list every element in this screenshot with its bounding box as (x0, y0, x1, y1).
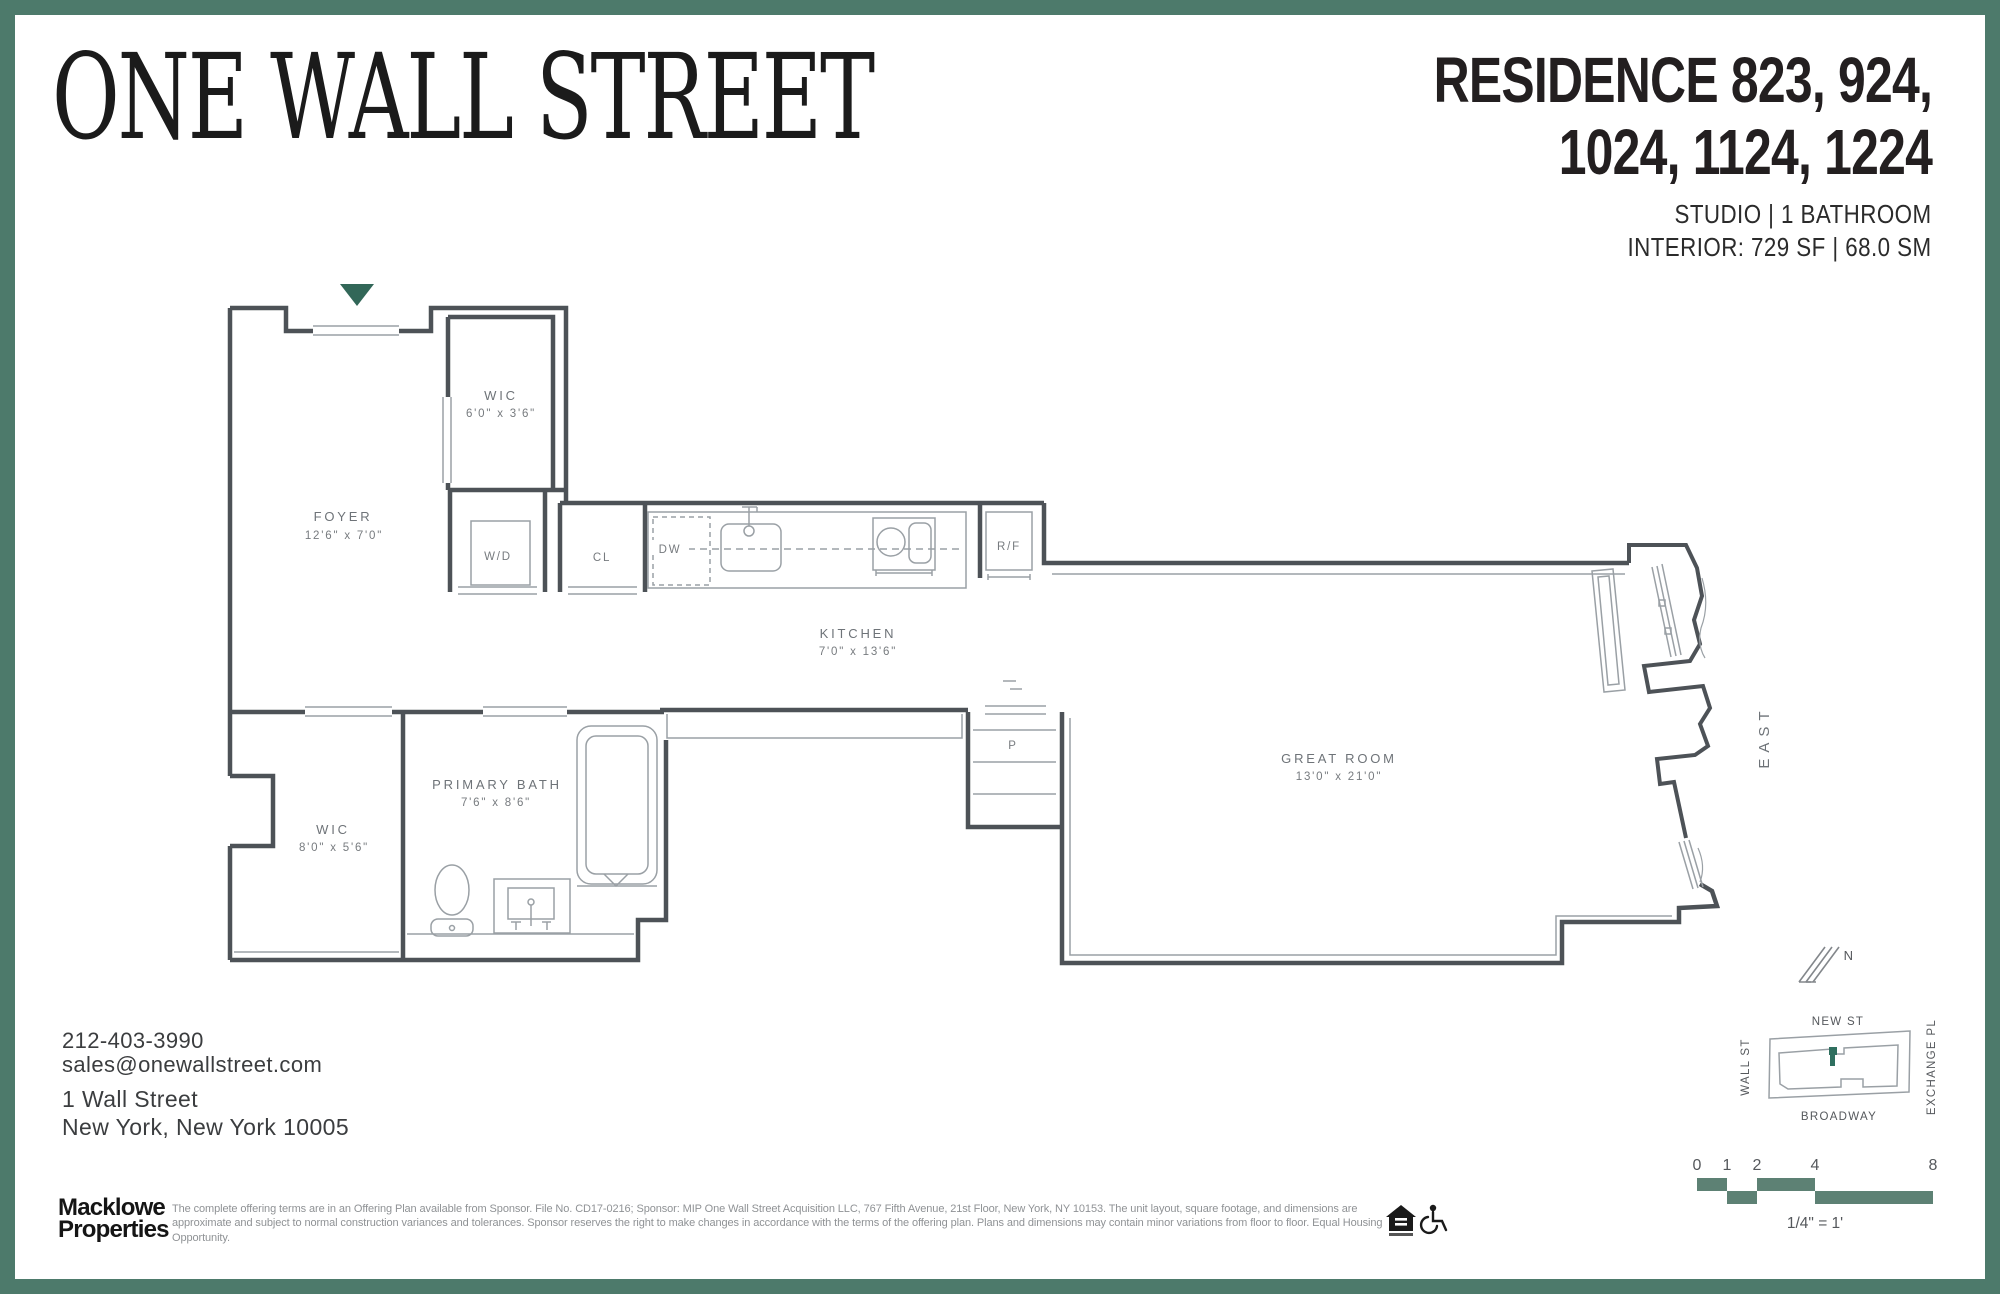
map-street-exchange-pl: EXCHANGE PL (1926, 1019, 1938, 1115)
building-location-marker (1829, 1047, 1837, 1066)
room-labels: WIC 6'0" x 3'6" FOYER 12'6" x 7'0" W/D C… (299, 388, 1773, 854)
contact-phone: 212-403-3990 (62, 1028, 204, 1054)
legal-disclaimer-line2: and subject to normal construction varia… (172, 1217, 1382, 1243)
scale-tick-1: 1 (1723, 1157, 1732, 1174)
room-label-dw: DW (659, 544, 682, 556)
entry-marker-icon (340, 284, 374, 306)
room-label-rf: R/F (997, 541, 1021, 553)
room-label-kitchen: KITCHEN (820, 626, 897, 641)
room-label-wd: W/D (484, 551, 512, 563)
north-label: N (1844, 948, 1855, 963)
floorplan-sheet: ONE WALL STREET RESIDENCE 823, 924, 1024… (0, 0, 2000, 1294)
orientation-label-east: EAST (1756, 705, 1773, 768)
room-dims-kitchen: 7'0" x 13'6" (819, 646, 897, 658)
room-label-primary-bath: PRIMARY BATH (432, 777, 562, 792)
map-street-wall-st: WALL ST (1740, 1038, 1752, 1095)
map-street-broadway: BROADWAY (1801, 1111, 1877, 1123)
room-label-pantry: P (1008, 740, 1017, 752)
scale-bar: 0 1 2 4 8 1/4" = 1' (1693, 1157, 1938, 1232)
room-label-wic-upper: WIC (484, 388, 518, 403)
contact-address-line1: 1 Wall Street (62, 1086, 198, 1113)
north-arrow-icon (1799, 947, 1839, 982)
contact-address-line2: New York, New York 10005 (62, 1114, 349, 1141)
equal-housing-icon (1386, 1205, 1416, 1236)
room-dims-foyer: 12'6" x 7'0" (305, 530, 383, 542)
brokerage-logo-line2: Properties (58, 1219, 169, 1241)
room-dims-great-room: 13'0" x 21'0" (1296, 771, 1382, 783)
room-label-cl: CL (593, 552, 611, 564)
room-label-wic-lower: WIC (316, 822, 350, 837)
accessibility-icon (1421, 1205, 1446, 1233)
scale-tick-0: 0 (1693, 1157, 1702, 1174)
scale-ratio: 1/4" = 1' (1787, 1215, 1843, 1232)
walls-thin-and-fixtures (234, 326, 1706, 955)
scale-tick-8: 8 (1929, 1157, 1938, 1174)
map-street-new-st: NEW ST (1812, 1016, 1865, 1028)
scale-tick-2: 2 (1753, 1157, 1762, 1174)
contact-email[interactable]: sales@onewallstreet.com (62, 1052, 322, 1078)
room-dims-primary-bath: 7'6" x 8'6" (461, 797, 531, 809)
location-map: NEW ST BROADWAY WALL ST EXCHANGE PL (1740, 1016, 1938, 1123)
room-label-foyer: FOYER (314, 509, 373, 524)
room-label-great-room: GREAT ROOM (1281, 751, 1397, 766)
scale-tick-4: 4 (1811, 1157, 1820, 1174)
room-dims-wic-upper: 6'0" x 3'6" (466, 408, 536, 420)
room-dims-wic-lower: 8'0" x 5'6" (299, 842, 369, 854)
brokerage-logo: Macklowe Properties (58, 1197, 169, 1241)
floorplan-drawing: WIC 6'0" x 3'6" FOYER 12'6" x 7'0" W/D C… (0, 0, 2000, 1294)
legal-disclaimer: The complete offering terms are in an Of… (172, 1202, 1387, 1245)
